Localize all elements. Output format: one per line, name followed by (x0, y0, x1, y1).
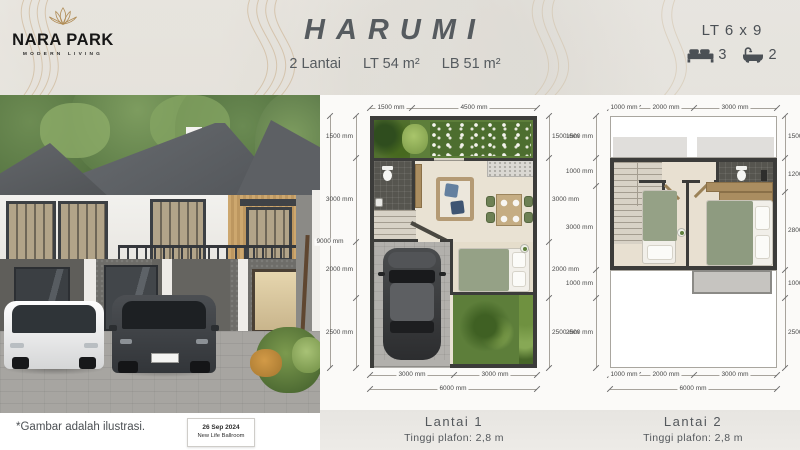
dim-label: 3000 mm (566, 225, 593, 232)
carport (374, 242, 450, 364)
stamp-date: 26 Sep 2024 (188, 424, 254, 431)
dim-label: 1500 mm (326, 134, 353, 141)
wardrobe (415, 164, 422, 208)
bathroom (374, 161, 412, 210)
awning (240, 199, 296, 206)
dim-label: 1500 mm (375, 105, 406, 112)
kitchen-counter (487, 161, 533, 177)
dim-label: 1200 mm (788, 172, 800, 179)
bedroom (453, 242, 533, 295)
bathrooms-count: 2 (769, 47, 777, 63)
dim-label: 3000 mm (719, 372, 750, 379)
entry-door (434, 158, 464, 161)
bed (706, 200, 773, 266)
stamp-venue: New Life Ballroom (188, 433, 254, 439)
event-stamp: 26 Sep 2024 New Life Ballroom (187, 418, 255, 447)
specs-block: LT 6 x 9 3 2 (672, 22, 792, 63)
bed (642, 190, 676, 264)
shrub (250, 349, 282, 377)
dim-label: 3000 mm (326, 197, 353, 204)
dining-table (496, 194, 522, 226)
window (6, 201, 56, 262)
plant (677, 228, 686, 237)
plan-title: Lantai 2 (613, 414, 773, 429)
license-plate (151, 353, 179, 363)
floorplan-2 (610, 116, 777, 368)
dim-label: 2000 mm (552, 267, 579, 274)
floorplans-panel: 1500 mm 4500 mm 1500 mm 3000 mm 2000 mm … (320, 95, 800, 450)
dim-label: 2500 mm (326, 330, 353, 337)
dim-label: 2000 mm (650, 105, 681, 112)
product-subtitle: 2 Lantai LT 54 m² LB 51 m² (250, 56, 540, 72)
dim-label: 3000 mm (719, 105, 750, 112)
vanity (761, 170, 767, 181)
dim-label: 2500 mm (788, 330, 800, 337)
sofa (436, 177, 474, 221)
dim-label: 1000 mm (566, 169, 593, 176)
dim-label: 1500 mm (788, 134, 800, 141)
plant (520, 244, 529, 253)
dim-label: 6000 mm (437, 386, 468, 393)
dining-chair (486, 212, 495, 223)
building-area-label: LB 51 m² (442, 56, 501, 72)
bath-icon (741, 46, 765, 63)
car-dark (112, 295, 216, 373)
wardrobe (706, 182, 773, 192)
car-topview (383, 248, 441, 360)
dim-label: 1000 mm (608, 105, 639, 112)
dim-label: 2000 mm (650, 372, 681, 379)
dim-label: 3000 mm (552, 197, 579, 204)
floorplan-1 (370, 116, 537, 368)
window (58, 201, 108, 262)
shrub (292, 337, 320, 373)
dim-label: 1500 mm (566, 134, 593, 141)
dim-label: 2000 mm (326, 267, 353, 274)
lit-doorway (252, 269, 302, 333)
land-area-label: LT 54 m² (363, 56, 420, 72)
brand-tagline: MODERN LIVING (8, 52, 118, 57)
plan-ceiling-note: Tinggi plafon: 2,8 m (613, 432, 773, 444)
photo-disclaimer: *Gambar adalah ilustrasi. (16, 421, 145, 433)
balcony (692, 270, 772, 294)
garden (374, 120, 533, 158)
dim-label: 4500 mm (458, 105, 489, 112)
void-area (610, 116, 777, 158)
floors-label: 2 Lantai (289, 56, 341, 72)
dining-chair (524, 196, 533, 207)
built-area (610, 158, 777, 270)
brochure-page: NARA PARK MODERN LIVING HARUMI 2 Lantai … (0, 0, 800, 450)
car-white (4, 301, 104, 369)
lotus-icon (44, 6, 82, 26)
hero-photo (0, 95, 320, 413)
dim-label: 2500 mm (566, 330, 593, 337)
plan-caption: Lantai 2 Tinggi plafon: 2,8 m (613, 414, 773, 444)
plan-title: Lantai 1 (374, 414, 534, 429)
dim-label: 1000 mm (608, 372, 639, 379)
product-title: HARUMI (250, 14, 540, 47)
column (238, 259, 248, 331)
dim-label: 1000 mm (566, 281, 593, 288)
product-title-block: HARUMI 2 Lantai LT 54 m² LB 51 m² (250, 14, 540, 72)
bed (458, 248, 530, 292)
brand-logo: NARA PARK MODERN LIVING (8, 6, 118, 57)
dim-label: 6000 mm (677, 386, 708, 393)
plan-caption: Lantai 1 Tinggi plafon: 2,8 m (374, 414, 534, 444)
lot-size-label: LT 6 x 9 (672, 22, 792, 39)
dim-label: 3000 mm (479, 372, 510, 379)
header-band: NARA PARK MODERN LIVING HARUMI 2 Lantai … (0, 0, 800, 95)
bed-icon (687, 46, 714, 63)
dining-chair (486, 196, 495, 207)
bedrooms-count: 3 (718, 47, 726, 63)
dim-label: 2800 mm (788, 228, 800, 235)
dim-label: 9000 mm (314, 239, 345, 246)
plan-ceiling-note: Tinggi plafon: 2,8 m (374, 432, 534, 444)
sink (375, 198, 383, 207)
brand-name: NARA PARK (8, 31, 118, 50)
dim-label: 3000 mm (396, 372, 427, 379)
dim-label: 1000 mm (788, 281, 800, 288)
garden (453, 295, 533, 364)
dining-chair (524, 212, 533, 223)
